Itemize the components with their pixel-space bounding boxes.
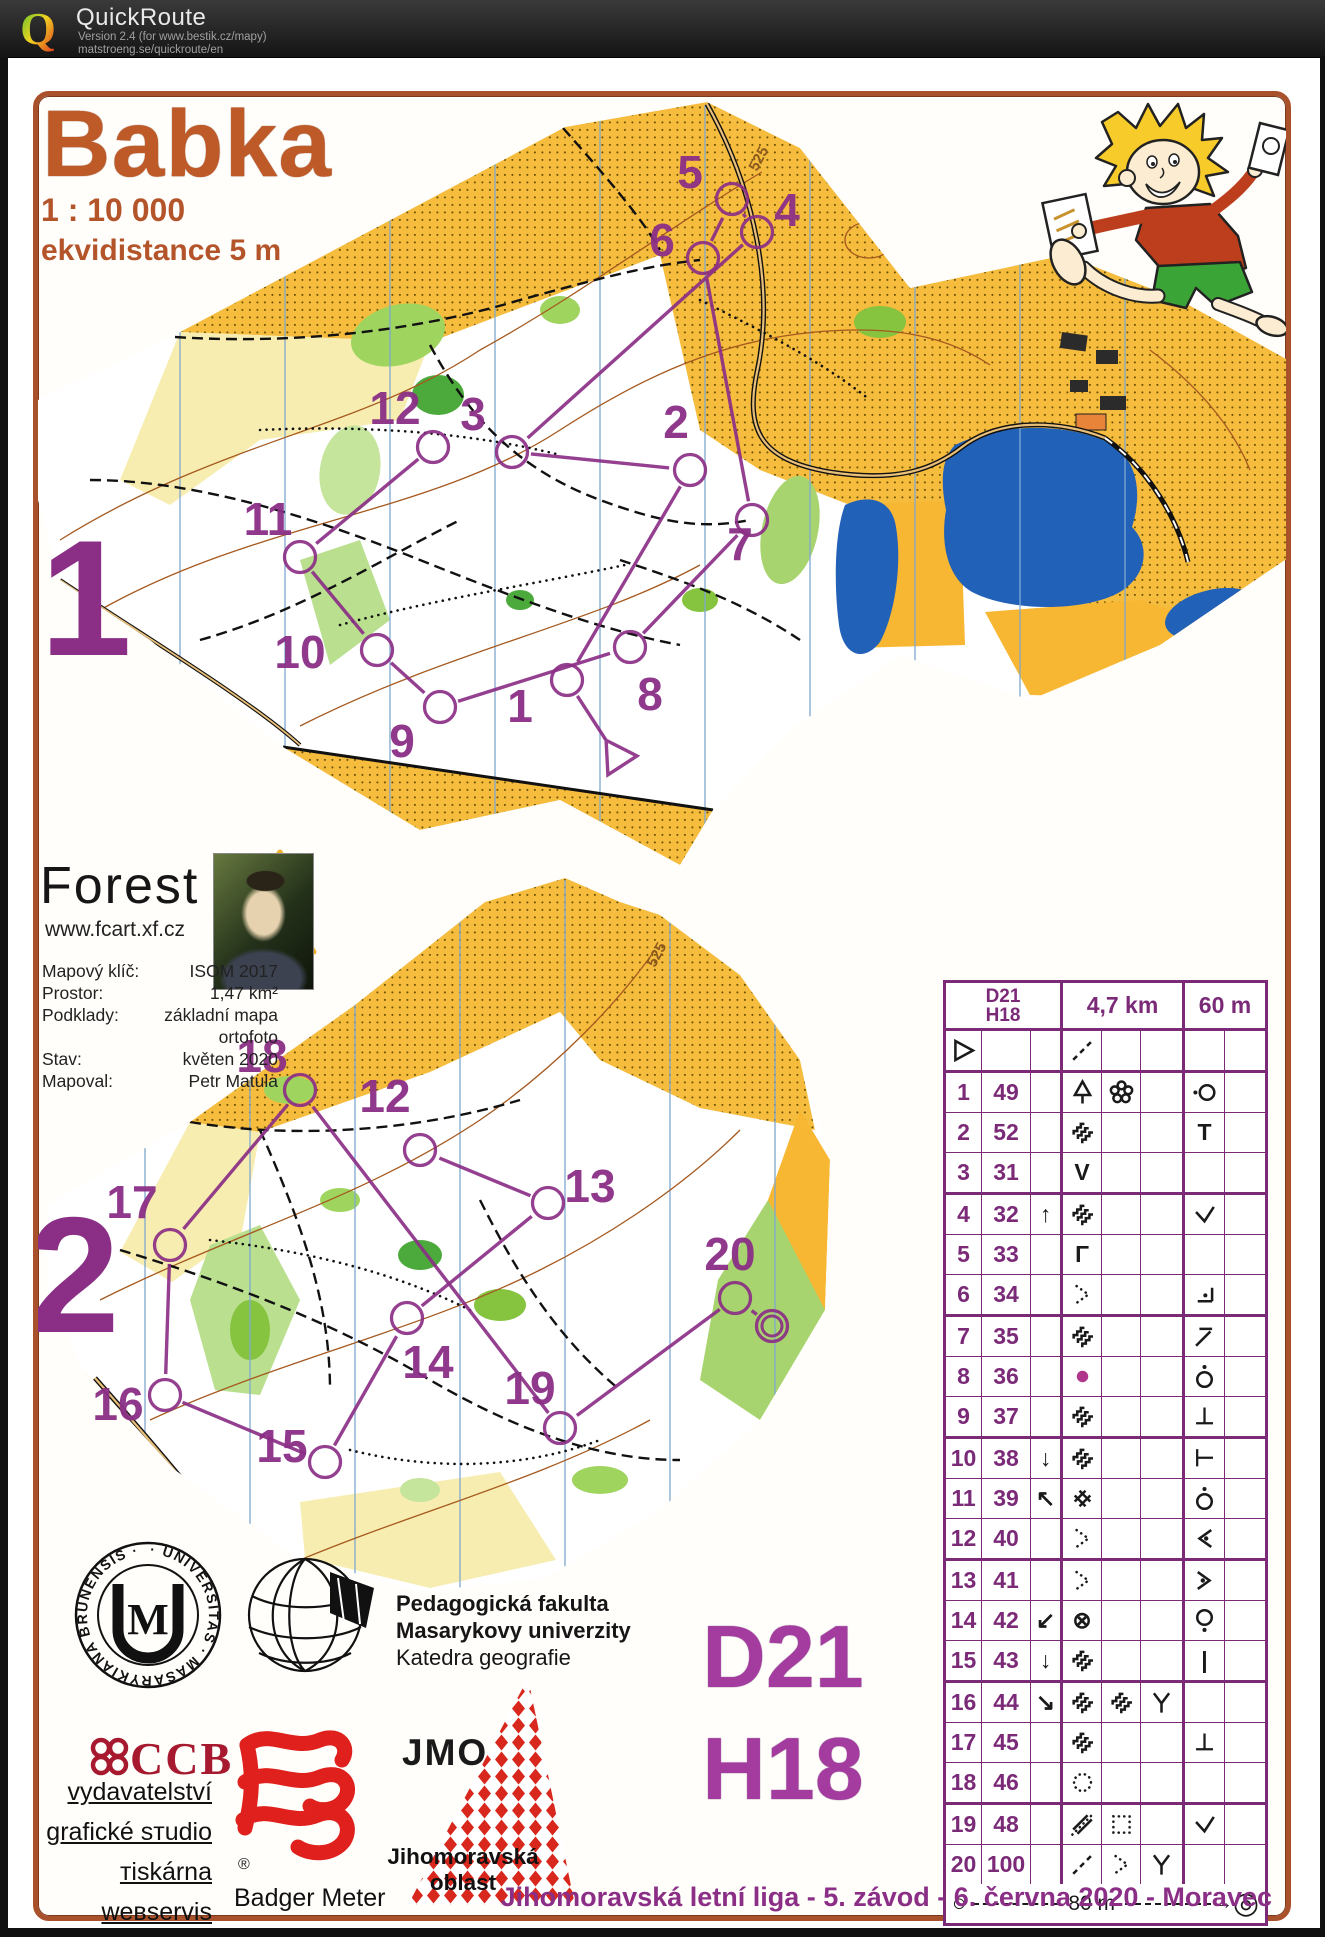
card-row: 432↑ <box>946 1195 1265 1235</box>
card-cell-a: 8 <box>946 1357 982 1396</box>
card-symbol: ⊗ <box>1072 1607 1091 1634</box>
card-cell-d: ⊗ <box>1063 1601 1102 1640</box>
card-cell-b: 34 <box>982 1275 1031 1314</box>
dashdiag-symbol-icon <box>1069 1037 1096 1064</box>
chevdots-symbol-icon <box>1069 1525 1096 1552</box>
card-symbol: ↘ <box>1036 1689 1055 1716</box>
marsh-symbol-icon <box>1069 1647 1096 1674</box>
jmo-region-line1: Jihomoravská <box>383 1844 543 1870</box>
card-cell-h <box>1225 1113 1265 1152</box>
card-cell-h <box>1225 1073 1265 1112</box>
start-symbol-icon <box>950 1037 977 1064</box>
card-row: 1846 <box>946 1763 1265 1805</box>
card-cell-h <box>1225 1357 1265 1396</box>
gtdot-symbol-icon <box>1191 1567 1218 1594</box>
card-class-cell: D21H18 <box>946 983 1063 1031</box>
card-cell-e <box>1102 1519 1141 1558</box>
marsh-symbol-icon <box>1069 1689 1096 1716</box>
control-number: 13 <box>564 1160 615 1212</box>
map-scale: 1 : 10 000 <box>41 192 185 229</box>
card-cell-a: 9 <box>946 1397 982 1436</box>
card-number: 40 <box>993 1525 1019 1552</box>
card-cell-d <box>1063 1195 1102 1234</box>
card-cell-f <box>1141 1479 1185 1518</box>
card-number: 36 <box>993 1363 1019 1390</box>
badger-meter-text: Badger Meter <box>234 1884 385 1913</box>
card-cell-g: ⊥ <box>1185 1723 1225 1762</box>
card-row: 1644↘ <box>946 1683 1265 1723</box>
card-number: 3 <box>957 1159 970 1186</box>
control-number: 14 <box>402 1336 454 1388</box>
control-number: 10 <box>274 626 325 678</box>
card-cell-c <box>1031 1357 1063 1396</box>
card-number: 17 <box>951 1729 977 1756</box>
faculty-line: Masarykovy univerzity <box>396 1617 631 1644</box>
ccb-service-line: vydavatelství <box>46 1772 212 1812</box>
quickroute-window: { "window": { "app_title": "QuickRoute",… <box>0 0 1325 1937</box>
cdotb-symbol-icon <box>1191 1607 1218 1634</box>
card-number: 37 <box>993 1403 1019 1430</box>
card-cell-e <box>1102 1479 1141 1518</box>
chevdots-symbol-icon <box>1069 1281 1096 1308</box>
card-cell-b: 46 <box>982 1763 1031 1802</box>
card-cell-b: 44 <box>982 1683 1031 1722</box>
card-cell-b: 48 <box>982 1805 1031 1844</box>
card-cell-f <box>1141 1641 1185 1680</box>
control-number: 15 <box>256 1420 307 1472</box>
card-number: 12 <box>951 1525 977 1552</box>
card-cell-a: 12 <box>946 1519 982 1558</box>
control-number: 3 <box>460 388 486 440</box>
card-cell-f <box>1141 1845 1185 1884</box>
card-row: 937⊥ <box>946 1397 1265 1439</box>
card-cell-b: 41 <box>982 1561 1031 1600</box>
card-cell-a: 10 <box>946 1439 982 1478</box>
forest-url: www.fcart.xf.cz <box>45 918 185 942</box>
card-cell-a: 14 <box>946 1601 982 1640</box>
ccb-service-line: grafické sтudio <box>46 1812 212 1852</box>
card-number: 6 <box>957 1281 970 1308</box>
card-cell-h <box>1225 1561 1265 1600</box>
card-cell-h <box>1225 1317 1265 1356</box>
card-cell-c <box>1031 1763 1063 1802</box>
card-cell-h <box>1225 1275 1265 1314</box>
dashdiag-symbol-icon <box>1069 1851 1096 1878</box>
card-cell-c: ↙ <box>1031 1601 1063 1640</box>
course-leg <box>743 214 746 217</box>
ccb-service-line: тiskárna <box>46 1852 212 1892</box>
card-cell-a: 17 <box>946 1723 982 1762</box>
meta-row: Prostor:1,47 km² <box>42 982 278 1004</box>
card-number: 11 <box>951 1485 975 1512</box>
card-cell-h <box>1225 1519 1265 1558</box>
yjunc-symbol-icon <box>1148 1689 1175 1716</box>
card-cell-h <box>1225 1763 1265 1802</box>
card-number: 45 <box>993 1729 1019 1756</box>
card-cell-b: 37 <box>982 1397 1031 1436</box>
cornerdot-symbol-icon <box>1191 1281 1218 1308</box>
card-cell-f <box>1141 1601 1185 1640</box>
card-cell-g <box>1185 1561 1225 1600</box>
control-number: 12 <box>369 382 420 434</box>
course-classes-label: D21 H18 <box>638 1601 928 1825</box>
card-cell-b: 32 <box>982 1195 1031 1234</box>
card-cell-h <box>1225 1683 1265 1722</box>
card-cell-b: 43 <box>982 1641 1031 1680</box>
control-number: 2 <box>663 396 689 448</box>
card-cell-g <box>1185 1519 1225 1558</box>
map-page: 1234567891011121 1213141516171819202 525… <box>33 91 1291 1921</box>
card-cell-c: ↓ <box>1031 1439 1063 1478</box>
card-cell-a: 20 <box>946 1845 982 1884</box>
card-number: 100 <box>987 1851 1025 1878</box>
tree-symbol-icon <box>1069 1079 1096 1106</box>
map-title: Babka <box>42 90 332 199</box>
control-number: 8 <box>637 668 663 720</box>
card-cell-f <box>1141 1723 1185 1762</box>
card-symbol: ↙ <box>1036 1607 1055 1634</box>
card-cell-g <box>1185 1153 1225 1192</box>
marsh-symbol-icon <box>1069 1403 1096 1430</box>
university-seal-logo: · UNIVERSITAS · MASARYKIANA BRUNENSIS · … <box>74 1541 222 1689</box>
globe-logo <box>249 1559 374 1671</box>
card-cell-h <box>1225 1235 1265 1274</box>
chevdots-symbol-icon <box>1069 1567 1096 1594</box>
card-cell-a: 2 <box>946 1113 982 1152</box>
card-number: 16 <box>951 1689 977 1716</box>
linesdots-symbol-icon <box>1069 1811 1096 1838</box>
flower-symbol-icon <box>1108 1079 1135 1106</box>
card-symbol: ↖ <box>1036 1485 1055 1512</box>
card-cell-g <box>1185 1317 1225 1356</box>
logo-letter: Q <box>20 3 56 54</box>
control-number: 16 <box>92 1378 143 1430</box>
card-cell-d: V <box>1063 1153 1102 1192</box>
card-cell-c <box>1031 1519 1063 1558</box>
forest-logo-text: Forest <box>40 856 199 916</box>
card-cell-f <box>1141 1275 1185 1314</box>
faculty-line: Katedra geografie <box>396 1644 631 1671</box>
map-equidistance: ekvidistance 5 m <box>41 234 281 268</box>
card-cell-g <box>1185 1031 1225 1070</box>
control-number: 1 <box>507 680 533 732</box>
card-cell-c <box>1031 1113 1063 1152</box>
card-cell-b: 35 <box>982 1317 1031 1356</box>
control-number: 9 <box>389 715 415 767</box>
card-cell-d <box>1063 1113 1102 1152</box>
card-cell-c: ↘ <box>1031 1683 1063 1722</box>
card-number: 15 <box>951 1647 977 1674</box>
card-cell-b: 39 <box>982 1479 1031 1518</box>
card-cell-e <box>1102 1357 1141 1396</box>
card-cell-g <box>1185 1195 1225 1234</box>
card-cell-e <box>1102 1805 1141 1844</box>
card-cell-d <box>1063 1641 1102 1680</box>
control-number: 7 <box>727 518 753 570</box>
card-cell-h <box>1225 1439 1265 1478</box>
card-cell-a: 4 <box>946 1195 982 1234</box>
ltdot-symbol-icon <box>1191 1525 1218 1552</box>
map-metadata: Mapový klíč:ISOM 2017Prostor:1,47 km²Pod… <box>42 960 278 1092</box>
card-row: 1745⊥ <box>946 1723 1265 1763</box>
meta-row: Mapový klíč:ISOM 2017 <box>42 960 278 982</box>
dot-symbol-icon <box>1069 1363 1096 1390</box>
card-cell-f <box>1141 1397 1185 1436</box>
card-row <box>946 1031 1265 1073</box>
card-cell-b: 40 <box>982 1519 1031 1558</box>
control-number: 20 <box>704 1228 755 1280</box>
map-part-number: 2 <box>38 1183 120 1367</box>
control-number: 19 <box>504 1362 555 1414</box>
card-cell-h <box>1225 1723 1265 1762</box>
card-cell-d <box>1063 1397 1102 1436</box>
card-cell-b: 100 <box>982 1845 1031 1884</box>
quickroute-logo-icon: Q <box>14 3 62 55</box>
card-cell-g <box>1185 1275 1225 1314</box>
card-cell-e <box>1102 1601 1141 1640</box>
card-cell-e <box>1102 1845 1141 1884</box>
card-row: 836 <box>946 1357 1265 1397</box>
ccb-services: vydavatelstvígrafické sтudioтiskárnaweвs… <box>46 1772 212 1932</box>
card-cell-d <box>1063 1805 1102 1844</box>
card-number: 10 <box>951 1445 977 1472</box>
card-cell-b: 49 <box>982 1073 1031 1112</box>
meta-row: Mapoval:Petr Matula <box>42 1070 278 1092</box>
card-cell-d <box>1063 1561 1102 1600</box>
card-cell-g: T <box>1185 1113 1225 1152</box>
card-cell-f <box>1141 1073 1185 1112</box>
card-cell-g <box>1185 1357 1225 1396</box>
card-cell-g: | <box>1185 1641 1225 1680</box>
card-cell-d <box>1063 1845 1102 1884</box>
meta-row: Stav:květen 2020 <box>42 1048 278 1070</box>
card-cell-e <box>1102 1683 1141 1722</box>
card-cell-e <box>1102 1763 1141 1802</box>
card-cell-e <box>1102 1275 1141 1314</box>
card-row: 1240 <box>946 1519 1265 1561</box>
card-cell-f <box>1141 1519 1185 1558</box>
card-row: 735 <box>946 1317 1265 1357</box>
card-row: 331V <box>946 1153 1265 1195</box>
card-cell-d <box>1063 1723 1102 1762</box>
card-cell-a: 7 <box>946 1317 982 1356</box>
cdota-symbol-icon <box>1191 1363 1218 1390</box>
card-cell-e <box>1102 1113 1141 1152</box>
card-cell-f <box>1141 1113 1185 1152</box>
card-row: 634 <box>946 1275 1265 1317</box>
card-cell-d <box>1063 1479 1102 1518</box>
yjunc-symbol-icon <box>1148 1851 1175 1878</box>
card-cell-e <box>1102 1641 1141 1680</box>
card-row: 20100 <box>946 1845 1265 1884</box>
card-cell-c <box>1031 1397 1063 1436</box>
hash-symbol-icon <box>1069 1485 1096 1512</box>
card-cell-a: 16 <box>946 1683 982 1722</box>
card-cell-g <box>1185 1073 1225 1112</box>
marsh-symbol-icon <box>1108 1689 1135 1716</box>
card-cell-g <box>1185 1479 1225 1518</box>
card-number: 8 <box>957 1363 970 1390</box>
badger-meter-logo <box>243 1738 348 1853</box>
card-symbol: ↓ <box>1040 1445 1052 1472</box>
meta-row: Podklady:základní mapa <box>42 1004 278 1026</box>
map-part-number: 1 <box>40 506 132 690</box>
control-number: 12 <box>359 1070 410 1122</box>
cdotl-symbol-icon <box>1191 1079 1218 1106</box>
card-cell-h <box>1225 1397 1265 1436</box>
card-cell-d <box>1063 1519 1102 1558</box>
card-number: 39 <box>993 1485 1019 1512</box>
card-cell-d <box>1063 1073 1102 1112</box>
card-row: 1038↓⊢ <box>946 1439 1265 1479</box>
card-row: 533Γ <box>946 1235 1265 1275</box>
card-cell-f <box>1141 1561 1185 1600</box>
card-number: 41 <box>993 1567 1019 1594</box>
card-number: 49 <box>993 1079 1019 1106</box>
class-d21: D21 <box>638 1601 928 1713</box>
card-number: 32 <box>993 1201 1019 1228</box>
card-cell-b <box>982 1031 1031 1070</box>
card-cell-f <box>1141 1153 1185 1192</box>
card-cell-c <box>1031 1845 1063 1884</box>
card-cell-c <box>1031 1031 1063 1070</box>
card-number: 9 <box>957 1403 970 1430</box>
card-cell-e <box>1102 1031 1141 1070</box>
card-cell-e <box>1102 1235 1141 1274</box>
card-cell-f <box>1141 1195 1185 1234</box>
card-cell-f <box>1141 1317 1185 1356</box>
card-row: 149 <box>946 1073 1265 1113</box>
card-number: 33 <box>993 1241 1019 1268</box>
app-title: QuickRoute <box>76 4 206 32</box>
card-cell-g <box>1185 1601 1225 1640</box>
card-cell-b: 42 <box>982 1601 1031 1640</box>
card-cell-c <box>1031 1723 1063 1762</box>
card-cell-h <box>1225 1153 1265 1192</box>
card-cell-f <box>1141 1031 1185 1070</box>
card-number: 14 <box>951 1607 977 1634</box>
card-symbol: ⊥ <box>1194 1729 1214 1756</box>
chevdots-symbol-icon <box>1108 1851 1135 1878</box>
card-cell-f <box>1141 1235 1185 1274</box>
card-number: 19 <box>951 1811 977 1838</box>
card-cell-e <box>1102 1561 1141 1600</box>
card-number: 7 <box>957 1323 970 1350</box>
marsh-symbol-icon <box>1069 1445 1096 1472</box>
card-symbol: | <box>1201 1647 1207 1674</box>
card-cell-d <box>1063 1317 1102 1356</box>
card-row: 1543↓| <box>946 1641 1265 1683</box>
card-cell-a: 18 <box>946 1763 982 1802</box>
jmo-logo-text: JMO <box>402 1732 488 1774</box>
card-cell-b: 45 <box>982 1723 1031 1762</box>
card-cell-g <box>1185 1683 1225 1722</box>
card-cell-a: 19 <box>946 1805 982 1844</box>
marsh-symbol-icon <box>1069 1323 1096 1350</box>
card-cell-h <box>1225 1805 1265 1844</box>
card-cell-g: ⊥ <box>1185 1397 1225 1436</box>
card-number: 20 <box>951 1851 977 1878</box>
card-number: 1 <box>957 1079 970 1106</box>
hookne-symbol-icon <box>1191 1323 1218 1350</box>
card-cell-a: 13 <box>946 1561 982 1600</box>
card-cell-g <box>1185 1845 1225 1884</box>
card-number: 44 <box>993 1689 1019 1716</box>
meta-row: ortofoto <box>42 1026 278 1048</box>
control-number: 11 <box>244 493 293 545</box>
control-number: 6 <box>649 214 675 266</box>
class-h18: H18 <box>638 1713 928 1825</box>
card-cell-e <box>1102 1153 1141 1192</box>
card-rows: 149252T331V432↑533Γ634735836937⊥1038↓⊢11… <box>946 1031 1265 1884</box>
card-cell-h <box>1225 1845 1265 1884</box>
card-cell-h <box>1225 1601 1265 1640</box>
card-cell-f <box>1141 1439 1185 1478</box>
card-cell-d <box>1063 1031 1102 1070</box>
card-cell-d <box>1063 1763 1102 1802</box>
card-cell-h <box>1225 1195 1265 1234</box>
card-number: 34 <box>993 1281 1019 1308</box>
card-number: 52 <box>993 1119 1019 1146</box>
card-row: 1442↙⊗ <box>946 1601 1265 1641</box>
ccb-service-line: weвservis <box>46 1892 212 1932</box>
card-cell-b: 31 <box>982 1153 1031 1192</box>
card-number: 38 <box>993 1445 1019 1472</box>
card-cell-e <box>1102 1439 1141 1478</box>
card-cell-a: 1 <box>946 1073 982 1112</box>
card-cell-b: 38 <box>982 1439 1031 1478</box>
card-number: 2 <box>957 1119 970 1146</box>
card-cell-a: 3 <box>946 1153 982 1192</box>
card-cell-f <box>1141 1763 1185 1802</box>
marsh-symbol-icon <box>1069 1729 1096 1756</box>
control-number: 5 <box>677 146 703 198</box>
card-cell-e <box>1102 1723 1141 1762</box>
card-cell-c <box>1031 1235 1063 1274</box>
faculty-text-block: Pedagogická fakultaMasarykovy univerzity… <box>396 1590 631 1671</box>
card-cell-d <box>1063 1683 1102 1722</box>
card-number: 46 <box>993 1769 1019 1796</box>
card-symbol: ↑ <box>1040 1201 1052 1228</box>
card-symbol: Γ <box>1075 1241 1089 1268</box>
card-symbol: ⊥ <box>1194 1403 1214 1430</box>
card-cell-c <box>1031 1561 1063 1600</box>
card-symbol: V <box>1074 1159 1089 1186</box>
card-symbol: ⊢ <box>1194 1445 1214 1472</box>
card-cell-d: Γ <box>1063 1235 1102 1274</box>
badger-registered-mark: ® <box>238 1856 250 1874</box>
control-description-card: D21H18 4,7 km 60 m 149252T331V432↑533Γ63… <box>943 980 1268 1926</box>
card-cell-c <box>1031 1317 1063 1356</box>
card-cell-c <box>1031 1275 1063 1314</box>
check-symbol-icon <box>1191 1811 1218 1838</box>
card-cell-f <box>1141 1683 1185 1722</box>
card-symbol: T <box>1197 1119 1211 1146</box>
card-length-cell: 4,7 km <box>1063 983 1185 1031</box>
card-cell-g <box>1185 1763 1225 1802</box>
card-cell-b: 33 <box>982 1235 1031 1274</box>
card-cell-c <box>1031 1805 1063 1844</box>
card-cell-h <box>1225 1031 1265 1070</box>
dotsquare-symbol-icon <box>1108 1811 1135 1838</box>
card-number: 31 <box>993 1159 1019 1186</box>
window-edge-left <box>0 57 8 1937</box>
card-cell-c <box>1031 1153 1063 1192</box>
card-number: 43 <box>993 1647 1019 1674</box>
app-link: matstroeng.se/quickroute/en <box>78 44 223 56</box>
control-number: 4 <box>774 184 800 236</box>
card-symbol: ↓ <box>1040 1647 1052 1674</box>
